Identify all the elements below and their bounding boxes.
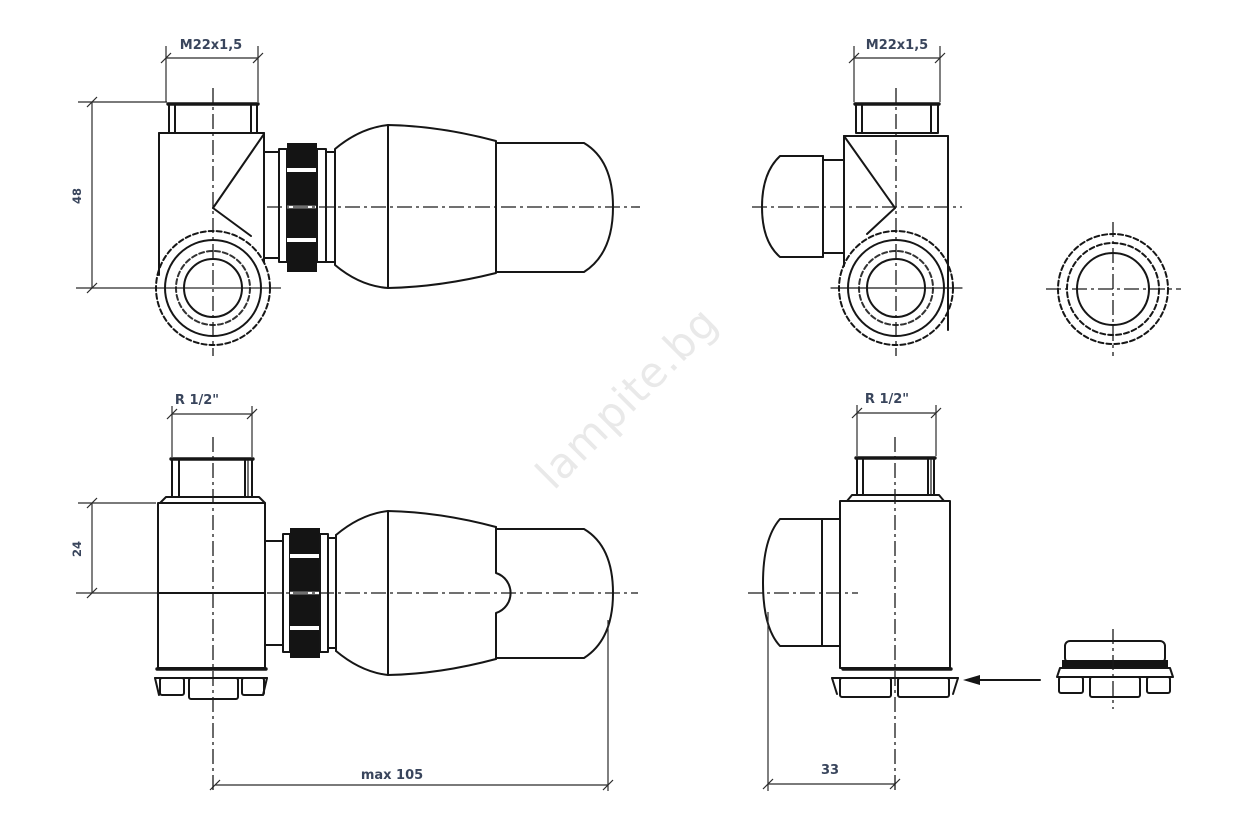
tail-nut-detail — [1057, 629, 1173, 709]
dim-thread-bottom-left: R 1/2" — [167, 393, 257, 457]
dim-label-m22-left: M22x1,5 — [180, 38, 242, 53]
dim-label-max105: max 105 — [361, 768, 423, 783]
dim-thread-bottom-right: R 1/2" — [852, 392, 941, 456]
thread-stub-top-right — [855, 104, 939, 133]
dim-label-r12-right: R 1/2" — [865, 392, 909, 407]
dim-label-48: 48 — [70, 188, 84, 204]
dim-label-r12-left: R 1/2" — [175, 393, 219, 408]
gasket-ring-detail — [1046, 222, 1181, 356]
centerlines-bottom-left — [213, 437, 638, 791]
technical-drawing-svg: lampite.bg M22x1,5 48 — [0, 0, 1256, 828]
view-bottom-right: R 1/2" — [748, 392, 1040, 791]
drawing-canvas: lampite.bg M22x1,5 48 — [0, 0, 1256, 828]
view-top-left: M22x1,5 48 — [70, 38, 640, 356]
watermark-text: lampite.bg — [526, 297, 727, 498]
dim-label-33: 33 — [821, 763, 839, 778]
dim-label-m22-right: M22x1,5 — [866, 38, 928, 53]
valve-body-bottom-left — [158, 503, 283, 668]
valve-body-top-left — [159, 133, 279, 275]
head-stub-bottom-right — [763, 519, 840, 646]
dim-label-24: 24 — [70, 541, 84, 557]
hex-nut-bottom-left — [155, 669, 267, 699]
dim-thread-top-right: M22x1,5 — [849, 38, 945, 102]
dim-offset-33: 33 — [763, 612, 900, 791]
assembly-arrow — [963, 675, 1040, 685]
dim-height-24: 24 — [70, 498, 158, 598]
view-top-right: M22x1,5 — [752, 38, 962, 356]
dim-thread-top-left: M22x1,5 — [161, 38, 263, 102]
